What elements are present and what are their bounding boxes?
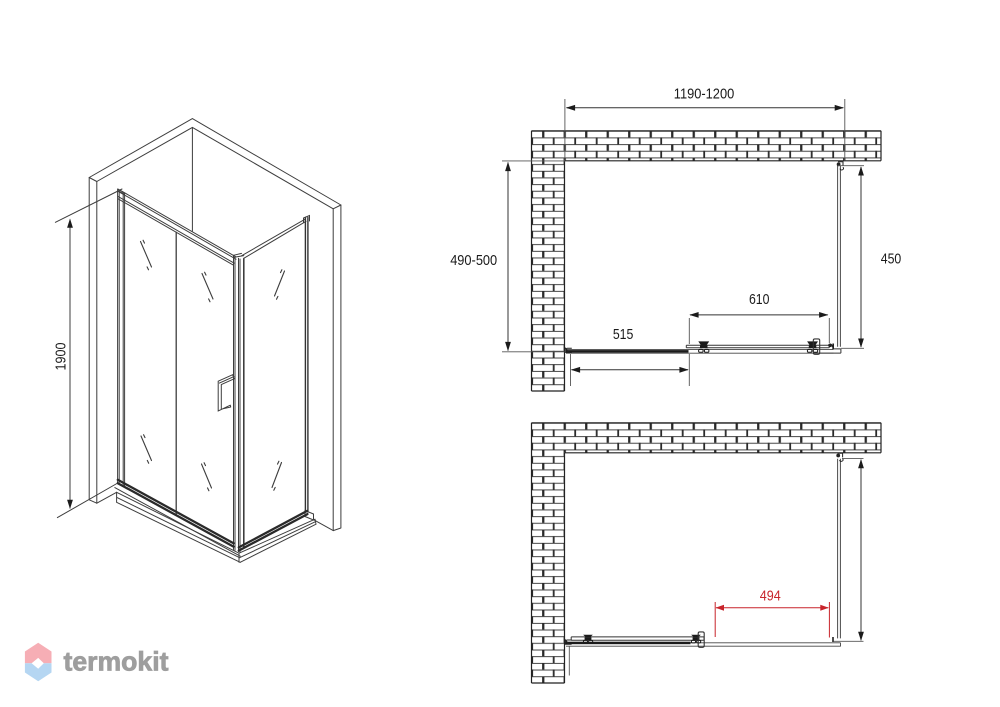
svg-text:490-500: 490-500 (450, 252, 497, 269)
svg-text:515: 515 (613, 326, 634, 343)
svg-text:1900: 1900 (54, 343, 70, 371)
svg-text:termokit: termokit (64, 647, 169, 677)
svg-text:1190-1200: 1190-1200 (674, 85, 735, 102)
svg-text:610: 610 (749, 291, 770, 308)
svg-text:494: 494 (760, 588, 781, 605)
svg-text:450: 450 (881, 251, 902, 268)
